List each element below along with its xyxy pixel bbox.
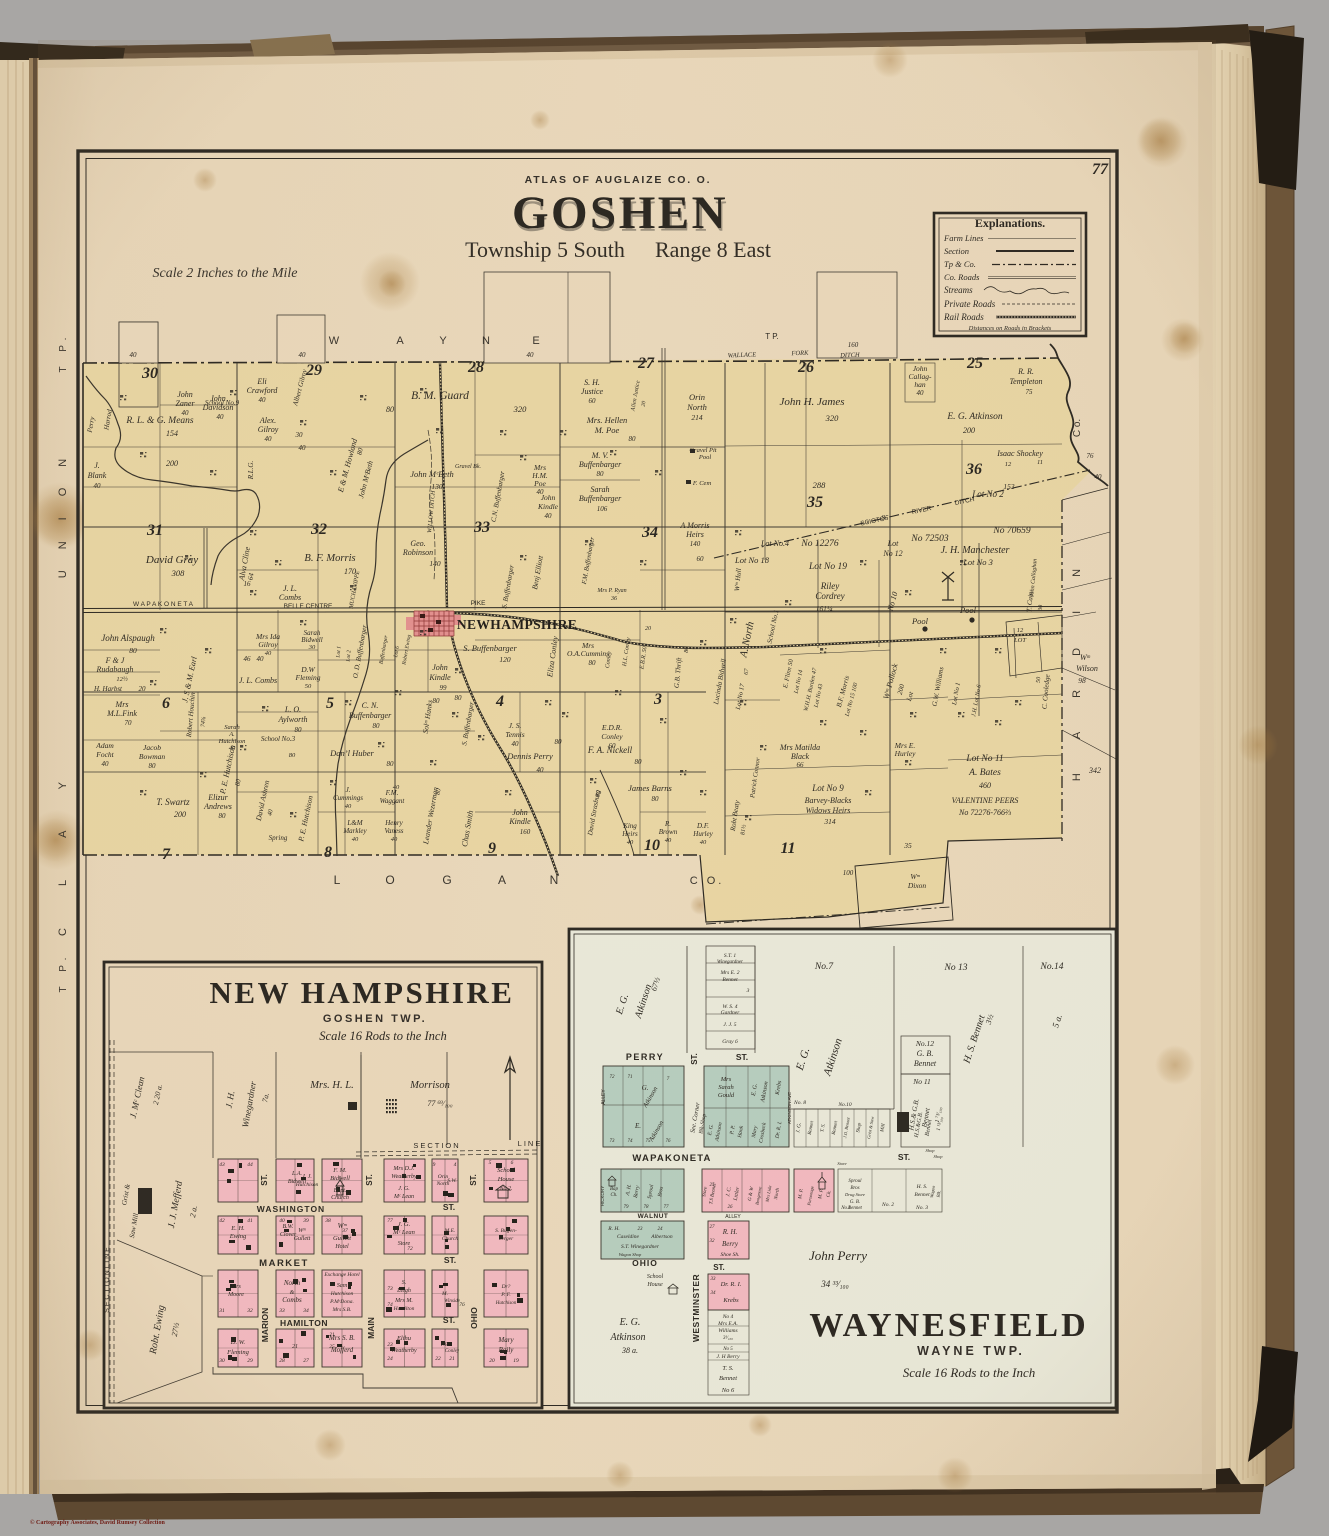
svg-text:© Cartography Associates, Davi: © Cartography Associates, David Rumsey C… [30, 1519, 165, 1526]
